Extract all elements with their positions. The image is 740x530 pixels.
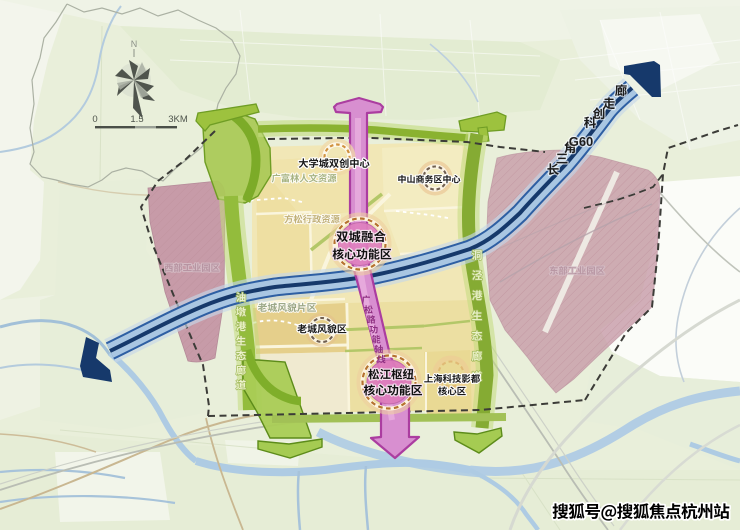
svg-text:0: 0 xyxy=(92,114,97,125)
svg-text:3KM: 3KM xyxy=(168,114,188,125)
svg-text:N: N xyxy=(131,39,138,49)
svg-text:1.5: 1.5 xyxy=(130,114,143,125)
svg-text:G60: G60 xyxy=(569,134,594,149)
